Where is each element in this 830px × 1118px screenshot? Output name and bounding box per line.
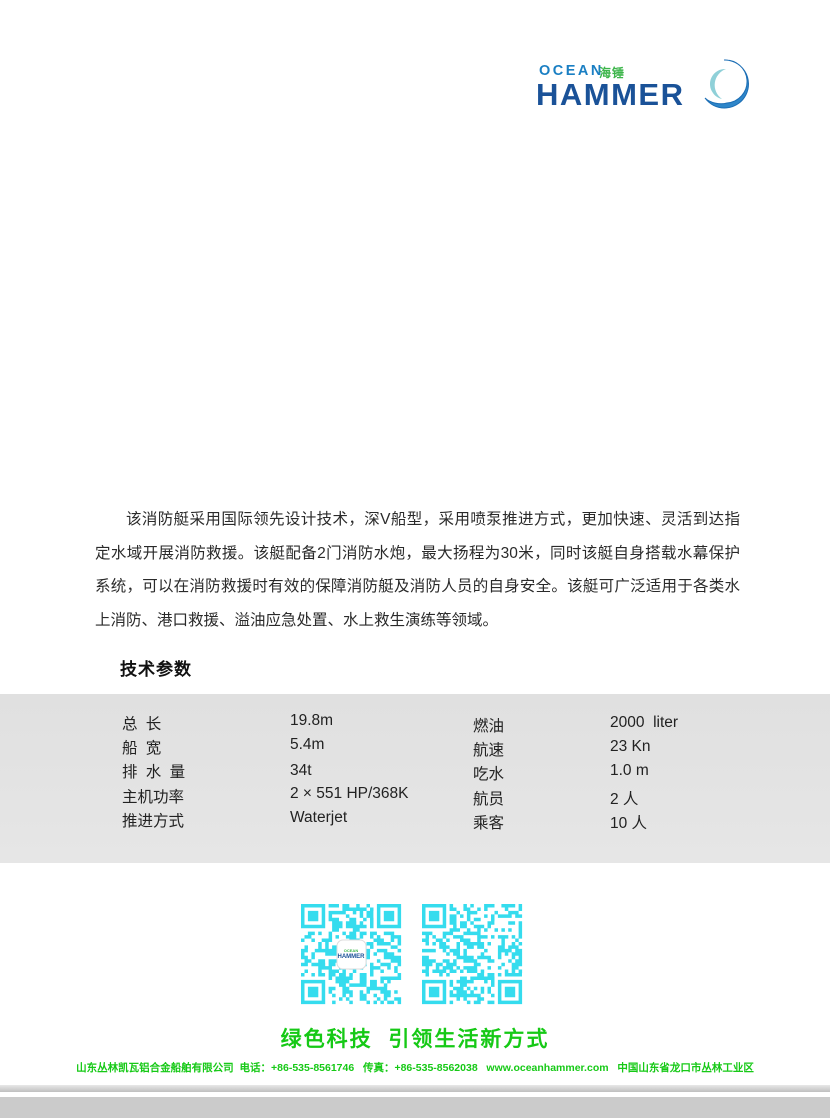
- svg-text:OCEAN: OCEAN: [344, 948, 359, 953]
- svg-text:HAMMER: HAMMER: [338, 954, 366, 960]
